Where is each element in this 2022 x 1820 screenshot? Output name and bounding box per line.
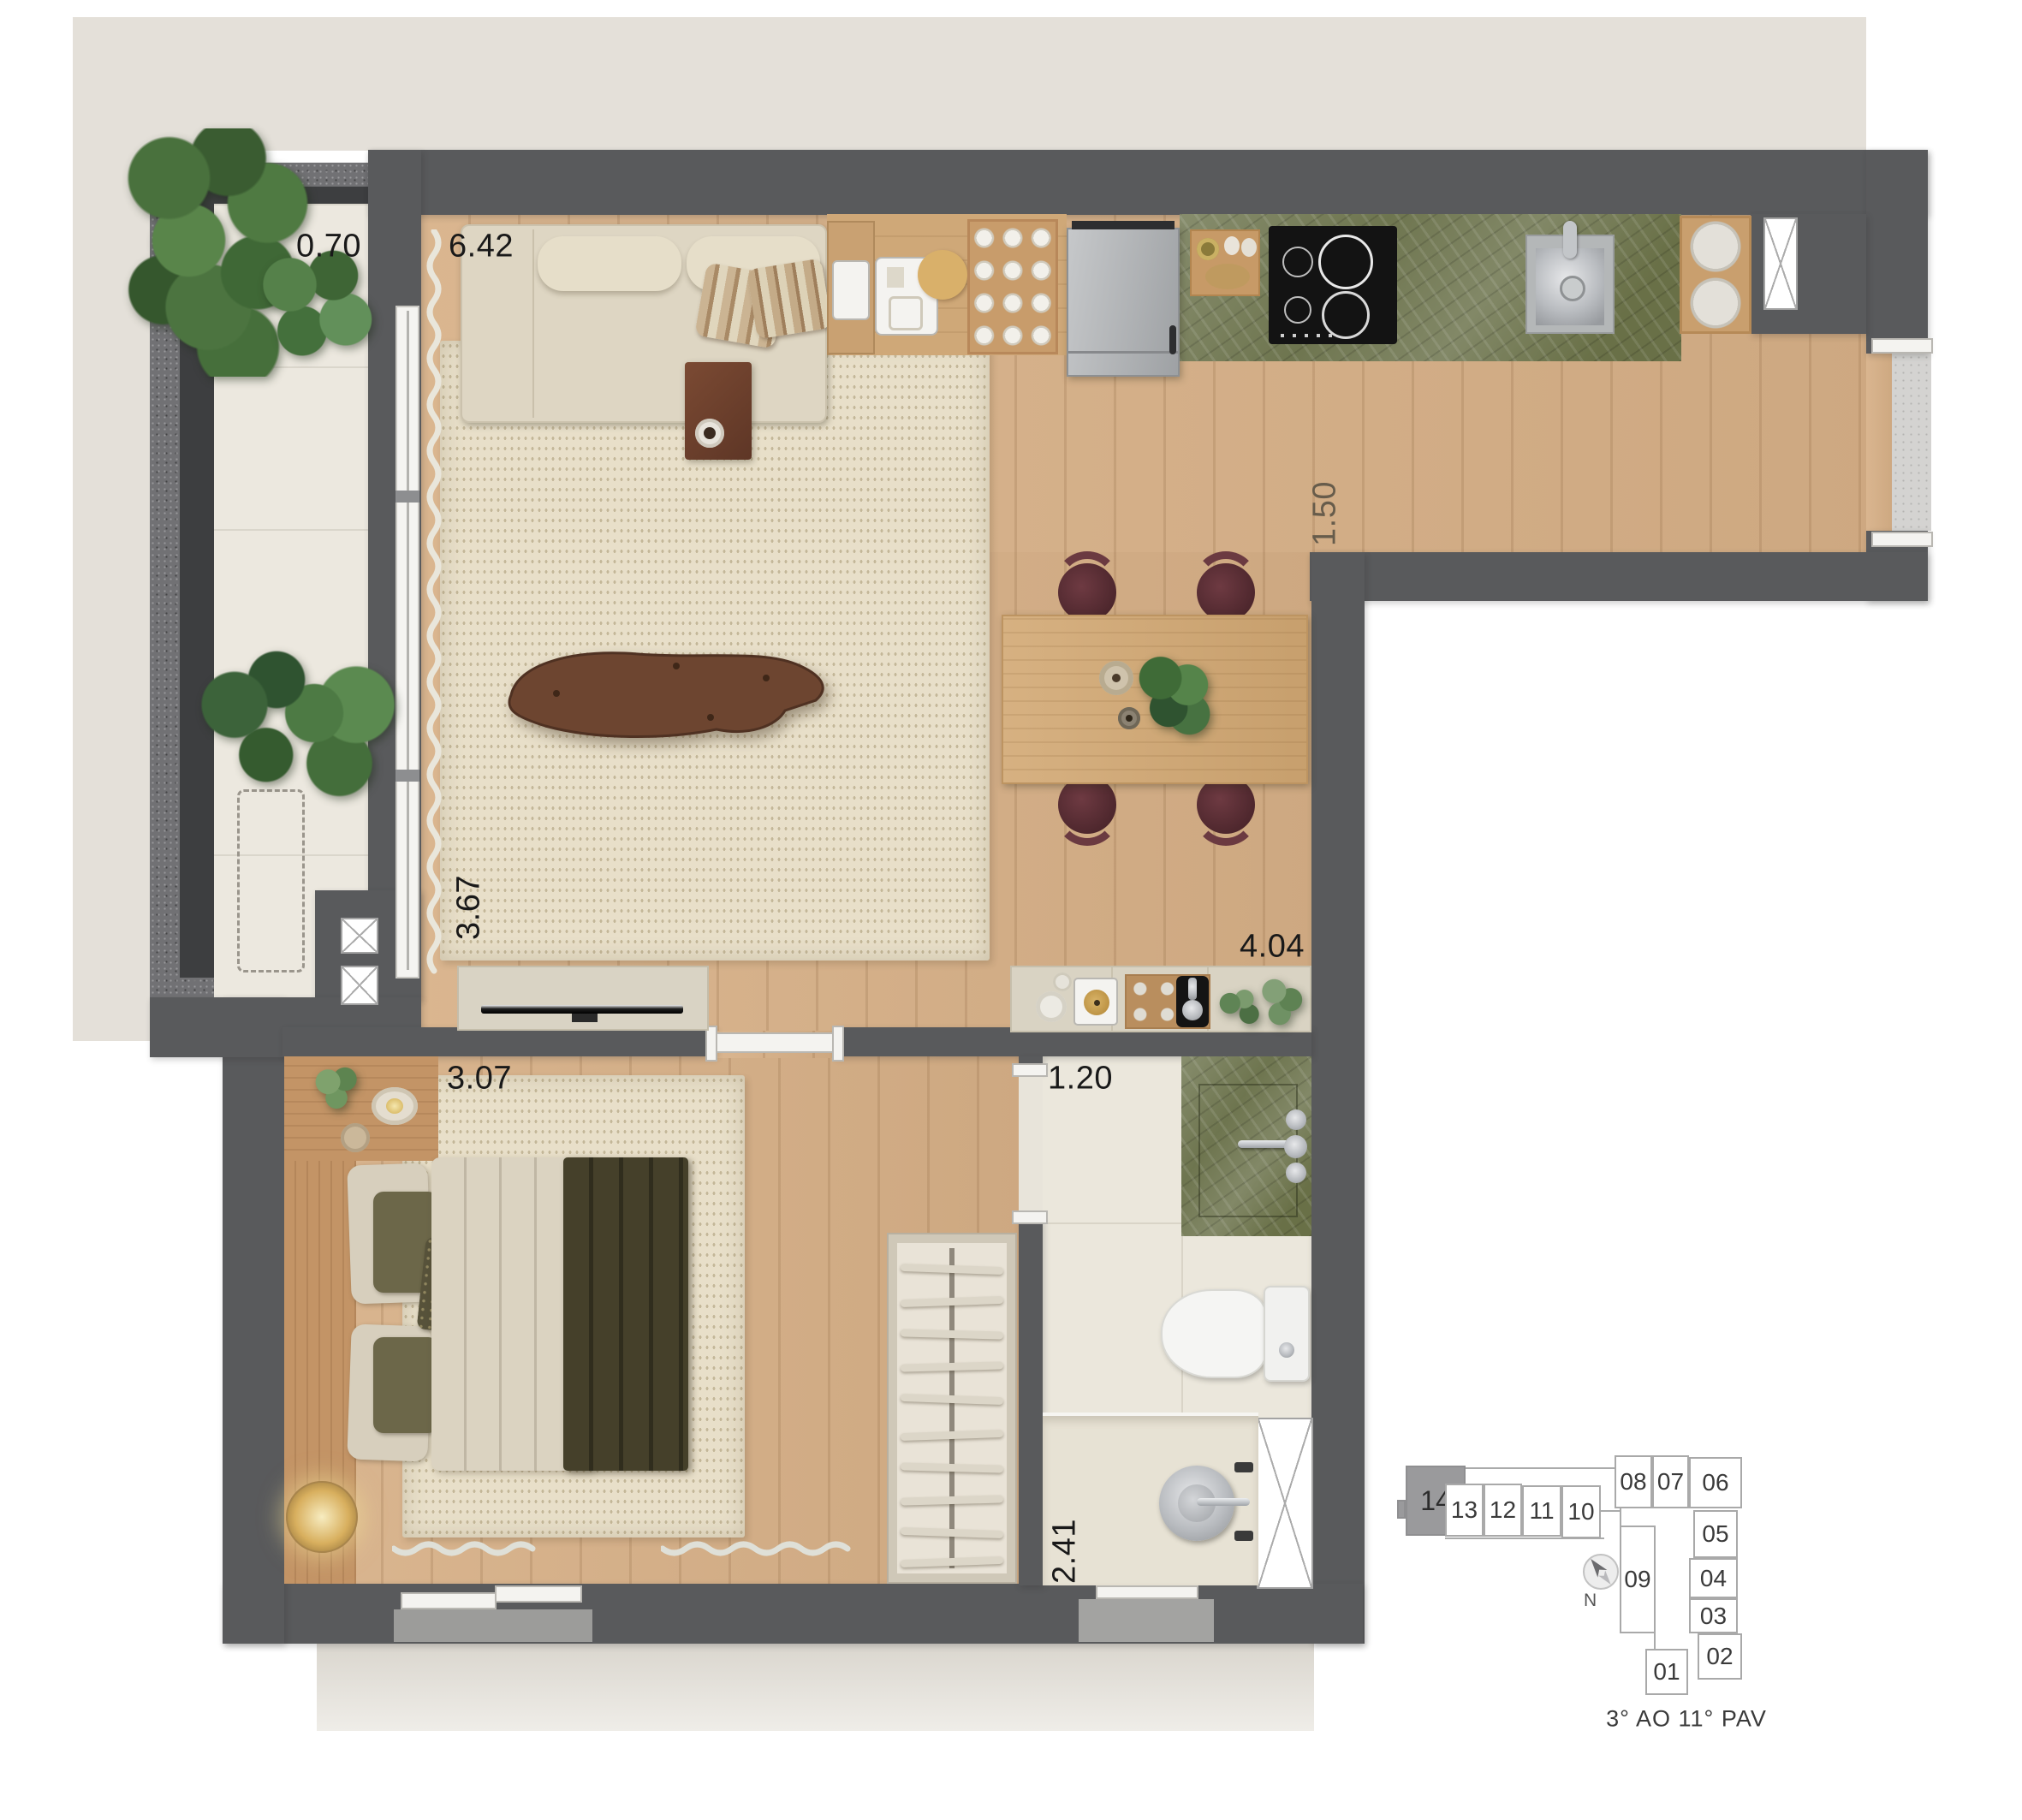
sofa-chaise-divider (532, 229, 534, 418)
unit-label: 06 (1702, 1469, 1728, 1496)
keyplan-caption: 3° AO 11° PAV (1606, 1706, 1767, 1733)
unit-label: 10 (1567, 1498, 1594, 1526)
burner-2 (1322, 291, 1370, 339)
refrigerator (1067, 228, 1180, 377)
bed (349, 1157, 688, 1472)
glass-line (407, 311, 409, 970)
burner-4 (1284, 296, 1311, 324)
keyplan-hull-line (1466, 1467, 1616, 1469)
shelf-candle-bowl (372, 1087, 418, 1125)
unit-label: 05 (1702, 1520, 1728, 1548)
kitchen-sink (1525, 235, 1615, 334)
keyplan-unit-12: 12 (1484, 1484, 1522, 1537)
floor-plan-canvas: 0.70 6.42 1.50 3.67 4.04 3.07 1.20 2.41 … (0, 0, 2022, 1820)
keyplan-unit-08: 08 (1615, 1455, 1652, 1508)
chair-back (1055, 551, 1120, 616)
bathroom-door-opening (1019, 1072, 1043, 1219)
toilet-tank (1264, 1286, 1310, 1382)
unit-label: 04 (1700, 1565, 1727, 1592)
dining-bowl-small (1118, 707, 1140, 729)
dining-bowl-large (1099, 661, 1133, 695)
candle-flame (386, 1098, 403, 1114)
balcony-plant-fern (193, 646, 402, 813)
egg-1 (1224, 236, 1240, 255)
mullion-1 (395, 491, 419, 503)
unit-label: 08 (1620, 1468, 1646, 1496)
unit-label: 13 (1451, 1496, 1478, 1524)
wall-east-lower (1311, 552, 1365, 1644)
shower-knob-1 (1286, 1109, 1306, 1130)
service-counter (1010, 966, 1311, 1032)
dim-label-living-depth: 3.67 (451, 875, 488, 940)
keyplan-unit-10: 10 (1561, 1485, 1601, 1538)
shower-knob-2 (1284, 1135, 1307, 1158)
coffee-cup (695, 419, 724, 448)
sofa (461, 224, 827, 423)
wardrobe-rail (949, 1248, 955, 1568)
faucet-handle-bottom (1234, 1531, 1253, 1541)
bed-pillow-olive-bottom (373, 1337, 438, 1433)
keyplan-unit-11: 11 (1522, 1485, 1561, 1537)
keyplan-unit-04: 04 (1689, 1558, 1738, 1598)
bedroom-door-jamb-right (832, 1026, 844, 1062)
kettle-tray (1073, 978, 1118, 1026)
compass-n-label: N (1584, 1591, 1597, 1611)
curtain-icon-bedroom-2 (661, 1537, 865, 1560)
keyplan-hull-line (1601, 1510, 1621, 1512)
curtain-icon-bedroom-1 (392, 1537, 572, 1560)
bathroom-door-frame-top (1012, 1063, 1048, 1077)
curtain-icon-living (423, 229, 445, 986)
keyplan-unit-09: 09 (1620, 1526, 1656, 1633)
cooktop (1269, 226, 1397, 344)
shelf-bowl (341, 1123, 370, 1152)
dim-label-living-width: 6.42 (449, 229, 514, 265)
cooktop-knobs (1281, 334, 1332, 337)
bedroom-window-sash-1 (401, 1592, 497, 1609)
wall-bathroom-west-b (1019, 1219, 1043, 1585)
sink-drain (1560, 276, 1585, 301)
kitchen-cups-board (967, 219, 1058, 354)
shower-tray-line (1198, 1084, 1298, 1217)
bread (1205, 264, 1250, 289)
unit-label: 02 (1706, 1643, 1733, 1670)
fridge-handle (1169, 325, 1176, 354)
coffee-cup-center (704, 427, 716, 439)
wardrobe (887, 1233, 1017, 1584)
chair-back (1055, 781, 1120, 846)
egg-2 (1241, 238, 1257, 257)
dining-chair-bottom-left (1055, 781, 1120, 846)
bedroom-door-jamb-left (705, 1026, 717, 1062)
side-table-tray (832, 260, 870, 320)
keyplan-unit-01: 01 (1645, 1649, 1688, 1695)
slab-top (73, 17, 1866, 151)
bedroom-door-threshold (716, 1032, 834, 1053)
basin-faucet (1197, 1498, 1250, 1506)
bathroom-door-frame-bottom (1012, 1210, 1048, 1224)
coffee-machine-cup (1182, 1000, 1203, 1020)
bedside-lamp (286, 1481, 358, 1553)
keyplan-unit-07: 07 (1652, 1455, 1689, 1508)
bowl-center (1112, 674, 1121, 682)
sink-faucet (1563, 221, 1577, 259)
keyplan-unit-06: 06 (1689, 1457, 1742, 1508)
dim-label-service: 4.04 (1240, 929, 1305, 966)
wall-living-bedroom (282, 1027, 716, 1056)
bedroom-shelf (284, 1056, 438, 1161)
unit-label: 01 (1653, 1658, 1680, 1686)
toilet-flush-button (1279, 1342, 1294, 1358)
toilet (1161, 1286, 1311, 1382)
plate-stack (1036, 991, 1067, 1022)
coffee-machine (1176, 976, 1209, 1027)
kitchen-plate-tray (1680, 216, 1751, 334)
toilet-bowl (1161, 1289, 1267, 1378)
slab-bottom (317, 1640, 1314, 1731)
bed-throw-olive (563, 1157, 688, 1471)
unit-label: 11 (1529, 1497, 1554, 1525)
keyplan-unit-03: 03 (1689, 1598, 1738, 1633)
ventilation-shaft-icon-bathroom (1257, 1418, 1313, 1589)
dim-label-bathroom-depth: 2.41 (1047, 1519, 1084, 1584)
unit-label: 07 (1657, 1468, 1684, 1496)
sofa-pillow-striped-2 (746, 259, 832, 340)
cutting-board (1190, 229, 1260, 296)
dining-centerpiece-plant (1132, 652, 1214, 738)
wall-bedroom-left (223, 997, 284, 1644)
bowl-center (1126, 715, 1133, 722)
entry-nook-floor (1866, 354, 1892, 531)
small-plate (1053, 972, 1072, 991)
tv-console (457, 966, 709, 1031)
entry-hall-floor (1892, 354, 1931, 531)
fridge-top-bar (1072, 221, 1175, 229)
fridge-bottom-line (1068, 351, 1178, 354)
dining-chair-top-left (1055, 551, 1120, 616)
balcony-ac-space (237, 789, 305, 972)
ventilation-shaft-icon-kitchen (1763, 217, 1798, 310)
tv-screen (481, 1005, 683, 1014)
ventilation-shaft-icon-balcony-2 (341, 966, 378, 1005)
dim-label-kitchen-depth: 1.50 (1307, 481, 1344, 546)
counter-plant-2 (1255, 974, 1310, 1031)
faucet-handle-top (1234, 1462, 1253, 1472)
chair-back (1193, 551, 1258, 616)
dining-chair-bottom-right (1193, 781, 1258, 846)
unit-label: 03 (1700, 1603, 1727, 1630)
keyplan-hull-line (1654, 1633, 1656, 1650)
bedroom-window-sash-2 (495, 1585, 582, 1603)
balcony-plant-pothos (253, 250, 377, 366)
avocado (1197, 238, 1219, 260)
keyplan-unit-02: 02 (1698, 1633, 1742, 1680)
keyplan-unit-14-tab (1397, 1500, 1406, 1519)
coffee-cup-table (685, 362, 752, 460)
wall-south-corridor (1310, 552, 1928, 601)
entry-door-frame-top (1871, 338, 1933, 354)
tv-stand (572, 1014, 598, 1022)
tray-item-square (887, 267, 904, 288)
keyplan-unit-13: 13 (1445, 1484, 1484, 1537)
kettle-knob (1094, 1000, 1100, 1006)
burner-3 (1282, 247, 1313, 277)
entry-door-frame-bottom (1871, 532, 1933, 547)
bathroom-window-sash (1096, 1585, 1198, 1599)
bathroom-window-ledge (1079, 1599, 1214, 1642)
chair-back (1193, 781, 1258, 846)
tray-item-ring (889, 296, 923, 330)
dim-label-bathroom-width: 1.20 (1048, 1061, 1113, 1097)
shower-knob-3 (1286, 1163, 1306, 1183)
kitchen-round-board (918, 250, 967, 300)
balcony-sliding-door (395, 306, 419, 978)
coffee-table (492, 642, 838, 753)
keyplan-unit-05: 05 (1693, 1510, 1738, 1558)
dim-label-balcony: 0.70 (296, 229, 361, 265)
burner-1 (1318, 235, 1373, 289)
ventilation-shaft-icon-balcony-1 (341, 918, 378, 954)
sofa-side-table (827, 221, 875, 354)
wall-top (368, 150, 1928, 215)
dim-label-bedroom: 3.07 (447, 1061, 512, 1097)
bedroom-window-ledge (394, 1609, 592, 1642)
wall-right-upper (1866, 150, 1928, 354)
shelf-plant (308, 1063, 365, 1116)
sofa-back-cushion-1 (538, 236, 681, 291)
unit-label: 12 (1490, 1496, 1516, 1524)
unit-label: 09 (1624, 1566, 1650, 1593)
coffee-machine-lever (1188, 978, 1197, 1000)
compass-icon (1580, 1551, 1621, 1592)
dining-chair-top-right (1193, 551, 1258, 616)
